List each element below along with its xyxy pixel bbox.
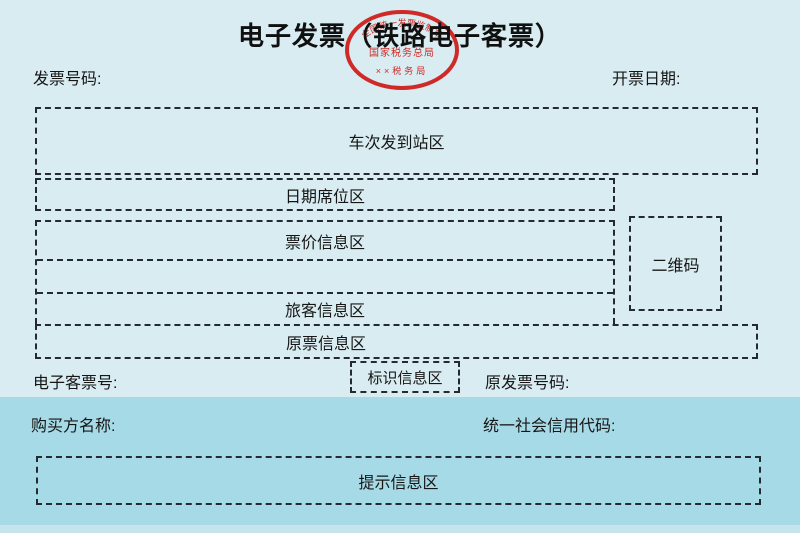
zone-qr-code: 二维码 <box>629 216 722 311</box>
zone-tip-info: 提示信息区 <box>36 456 761 505</box>
zone-mark-label: 标识信息区 <box>367 367 442 388</box>
original-invoice-number-label: 原发票号码: <box>485 369 569 393</box>
zone-train-departure-arrival: 车次发到站区 <box>35 107 758 175</box>
zone-tip-label: 提示信息区 <box>358 469 438 493</box>
zone-qr-label: 二维码 <box>651 252 699 276</box>
bottom-strip <box>0 525 800 533</box>
page-title: 电子发票（铁路电子客票） <box>0 16 800 53</box>
zone-passenger-info: 旅客信息区 <box>37 294 613 324</box>
zone-stack: 票价信息区 旅客信息区 <box>35 220 615 324</box>
zone-fare-label: 票价信息区 <box>285 229 365 253</box>
zone-passenger-label: 旅客信息区 <box>285 297 365 321</box>
credit-code-label: 统一社会信用代码: <box>483 412 615 436</box>
zone-date-seat: 日期席位区 <box>35 178 615 211</box>
zone-original-ticket-label: 原票信息区 <box>37 330 615 354</box>
zone-original-ticket-info: 原票信息区 <box>35 324 758 359</box>
zone-mark-info: 标识信息区 <box>350 361 460 393</box>
zone-train-label: 车次发到站区 <box>348 129 444 153</box>
zone-fare-info: 票价信息区 <box>37 222 613 261</box>
eticket-number-label: 电子客票号: <box>33 369 117 393</box>
buyer-name-label: 购买方名称: <box>31 412 115 436</box>
issue-date-label: 开票日期: <box>612 65 680 89</box>
invoice-number-label: 发票号码: <box>33 65 101 89</box>
zone-unlabeled-row <box>37 261 613 294</box>
seal-bottom-text: ××税务局 <box>376 65 429 76</box>
invoice-template: 全国统一发票监制章 国家税务总局 ××税务局 电子发票（铁路电子客票） 发票号码… <box>0 0 800 533</box>
zone-date-seat-label: 日期席位区 <box>285 183 365 207</box>
